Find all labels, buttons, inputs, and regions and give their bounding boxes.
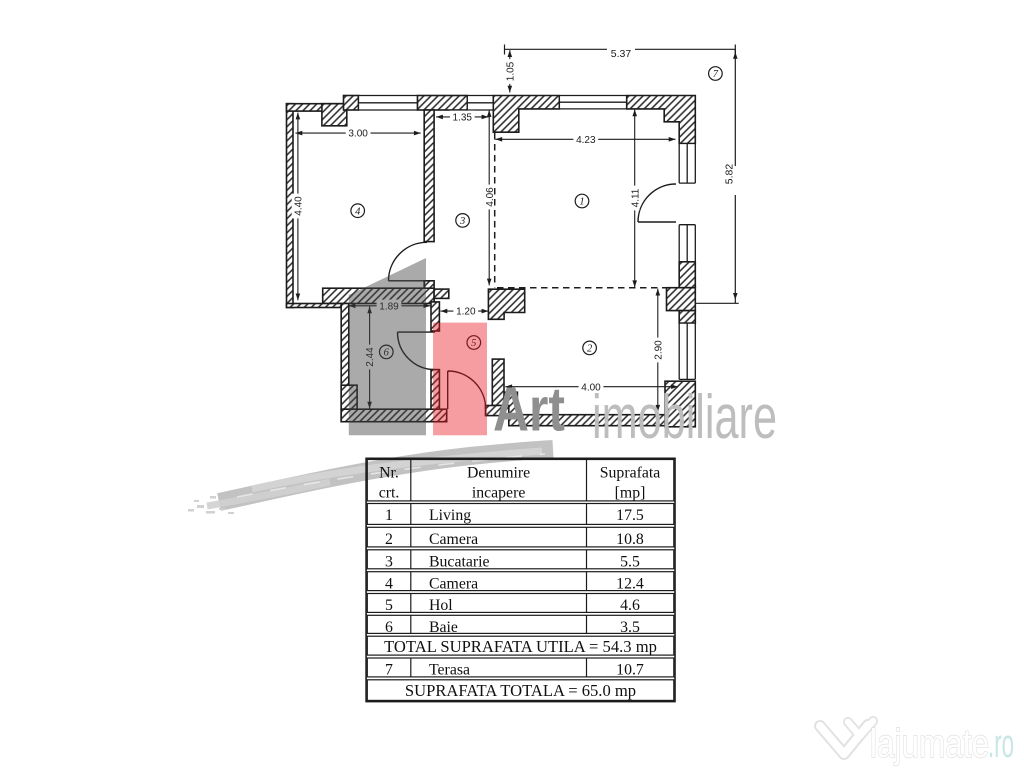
svg-text:Bucatarie: Bucatarie xyxy=(429,553,490,570)
svg-text:7: 7 xyxy=(385,662,393,679)
svg-text:5: 5 xyxy=(385,597,393,614)
svg-text:Hol: Hol xyxy=(429,597,453,614)
svg-text:Art: Art xyxy=(493,376,565,445)
svg-text:5.37: 5.37 xyxy=(611,48,632,60)
svg-text:1: 1 xyxy=(579,197,584,208)
svg-text:Suprafata: Suprafata xyxy=(600,465,661,482)
svg-text:incapere: incapere xyxy=(472,485,526,502)
svg-text:Baie: Baie xyxy=(429,619,458,636)
svg-text:Terasa: Terasa xyxy=(429,662,470,679)
svg-text:1.35: 1.35 xyxy=(453,113,473,124)
svg-text:crt.: crt. xyxy=(379,485,400,502)
svg-text:[mp]: [mp] xyxy=(615,485,646,502)
svg-text:Camera: Camera xyxy=(429,531,478,548)
svg-text:4.11: 4.11 xyxy=(630,188,641,207)
svg-text:4.6: 4.6 xyxy=(620,597,640,614)
svg-text:3.00: 3.00 xyxy=(348,129,368,140)
svg-text:17.5: 17.5 xyxy=(616,507,644,524)
svg-text:imobiliare: imobiliare xyxy=(592,383,777,452)
svg-text:7: 7 xyxy=(713,69,719,80)
svg-text:Nr.: Nr. xyxy=(379,465,399,482)
svg-text:1: 1 xyxy=(385,507,393,524)
svg-text:4.06: 4.06 xyxy=(485,187,496,207)
svg-text:5.82: 5.82 xyxy=(723,164,735,185)
svg-text:4: 4 xyxy=(355,206,361,217)
svg-text:2: 2 xyxy=(587,344,593,355)
svg-text:12.4: 12.4 xyxy=(616,575,644,592)
svg-text:4: 4 xyxy=(385,575,393,592)
svg-text:2.90: 2.90 xyxy=(653,340,664,360)
svg-text:4.23: 4.23 xyxy=(576,135,596,146)
svg-text:10.7: 10.7 xyxy=(616,662,644,679)
svg-text:10.8: 10.8 xyxy=(616,531,644,548)
svg-text:Living: Living xyxy=(429,507,471,524)
svg-text:Denumire: Denumire xyxy=(467,465,530,482)
svg-text:2: 2 xyxy=(385,531,393,548)
svg-text:Camera: Camera xyxy=(429,575,478,592)
svg-text:3.5: 3.5 xyxy=(620,619,640,636)
svg-text:TOTAL SUPRAFATA UTILA = 54.3 m: TOTAL SUPRAFATA UTILA = 54.3 mp xyxy=(384,637,657,656)
svg-text:lajumate: lajumate xyxy=(870,722,989,766)
svg-text:1.05: 1.05 xyxy=(505,61,516,81)
svg-text:3: 3 xyxy=(385,553,393,570)
svg-text:4.40: 4.40 xyxy=(294,196,305,216)
svg-text:1.20: 1.20 xyxy=(456,307,476,318)
svg-text:3: 3 xyxy=(459,216,465,227)
svg-text:SUPRAFATA TOTALA = 65.0 mp: SUPRAFATA TOTALA = 65.0 mp xyxy=(405,681,636,700)
svg-text:6: 6 xyxy=(385,619,393,636)
svg-text:5.5: 5.5 xyxy=(620,553,640,570)
svg-text:.ro: .ro xyxy=(988,722,1014,766)
